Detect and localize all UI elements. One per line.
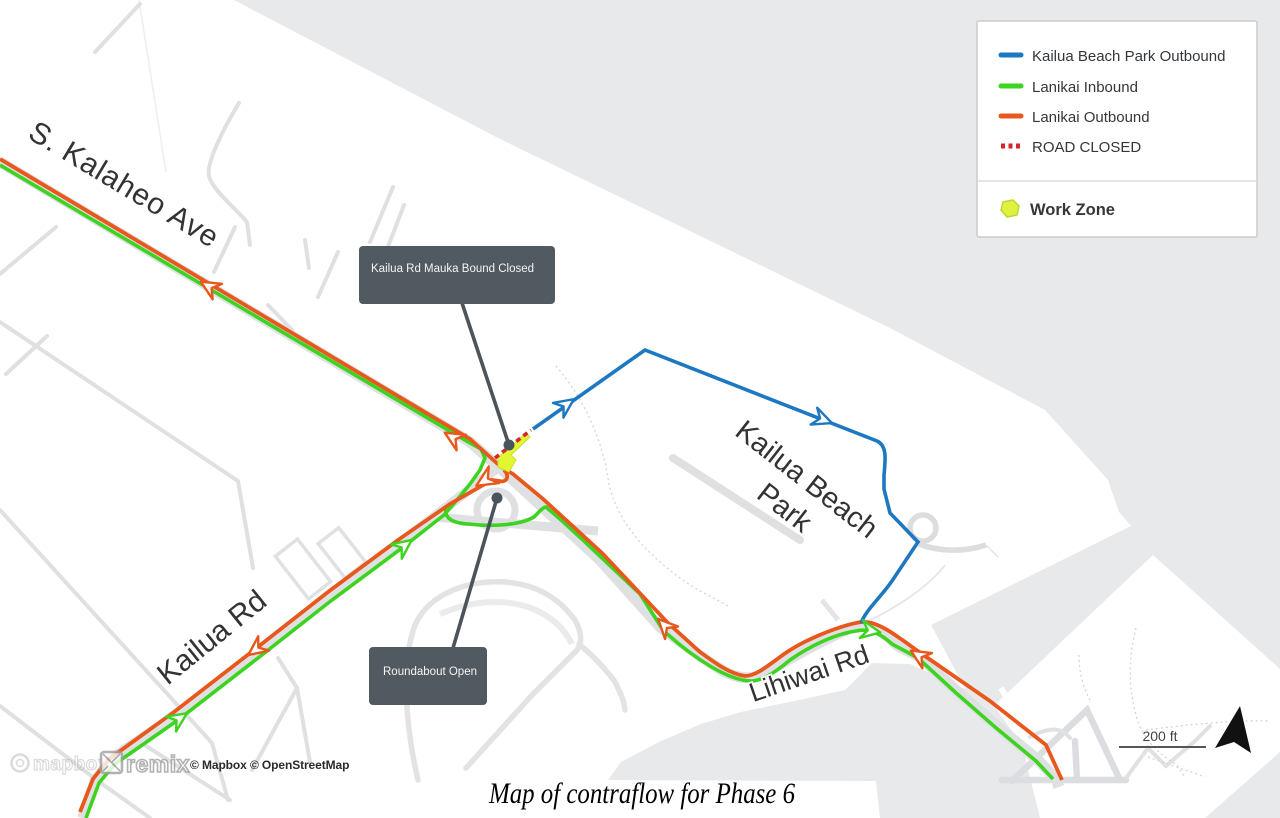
svg-text:ROAD CLOSED: ROAD CLOSED — [1032, 139, 1141, 156]
svg-text:Map of contraflow for Phase 6: Map of contraflow for Phase 6 — [488, 777, 795, 810]
svg-text:mapbox: mapbox — [33, 754, 109, 775]
svg-text:© Mapbox © OpenStreetMap: © Mapbox © OpenStreetMap — [190, 758, 349, 772]
svg-text:Work Zone: Work Zone — [1030, 201, 1115, 219]
svg-text:Lanikai Inbound: Lanikai Inbound — [1032, 79, 1138, 96]
svg-text:Kailua Beach Park Outbound: Kailua Beach Park Outbound — [1032, 48, 1225, 65]
svg-text:200 ft: 200 ft — [1142, 728, 1177, 744]
svg-text:Roundabout Open: Roundabout Open — [383, 666, 477, 678]
svg-text:remix: remix — [126, 751, 190, 777]
svg-text:Lanikai Outbound: Lanikai Outbound — [1032, 109, 1150, 126]
svg-text:Kailua Rd Mauka Bound Closed: Kailua Rd Mauka Bound Closed — [371, 263, 534, 275]
